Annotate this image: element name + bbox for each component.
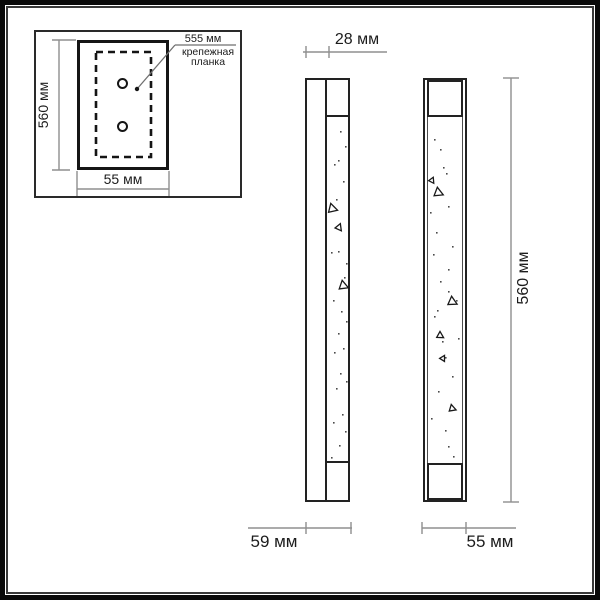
image-frame-inner [6, 6, 594, 594]
